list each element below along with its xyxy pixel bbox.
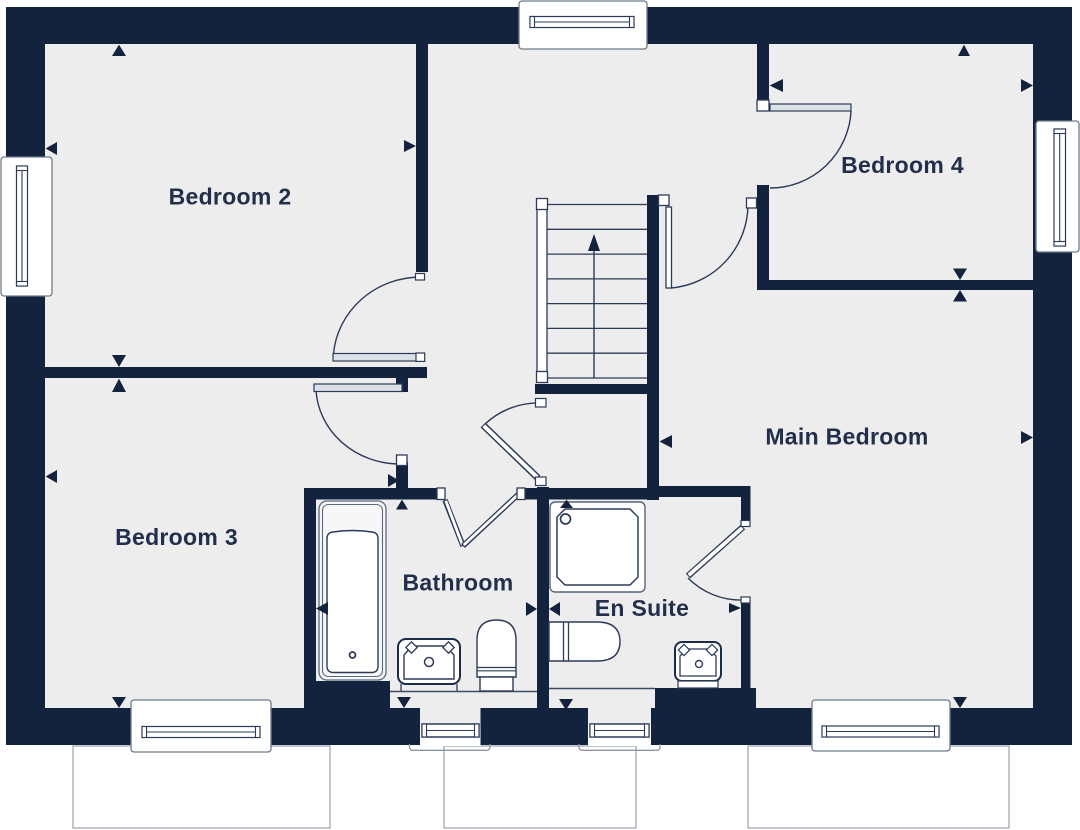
svg-text:Bedroom 2: Bedroom 2 (169, 184, 292, 210)
svg-text:Bedroom 3: Bedroom 3 (115, 524, 238, 550)
svg-text:En Suite: En Suite (595, 595, 689, 621)
svg-text:Bathroom: Bathroom (402, 570, 513, 596)
svg-text:Bedroom 4: Bedroom 4 (841, 152, 964, 178)
svg-text:Main Bedroom: Main Bedroom (765, 424, 928, 450)
